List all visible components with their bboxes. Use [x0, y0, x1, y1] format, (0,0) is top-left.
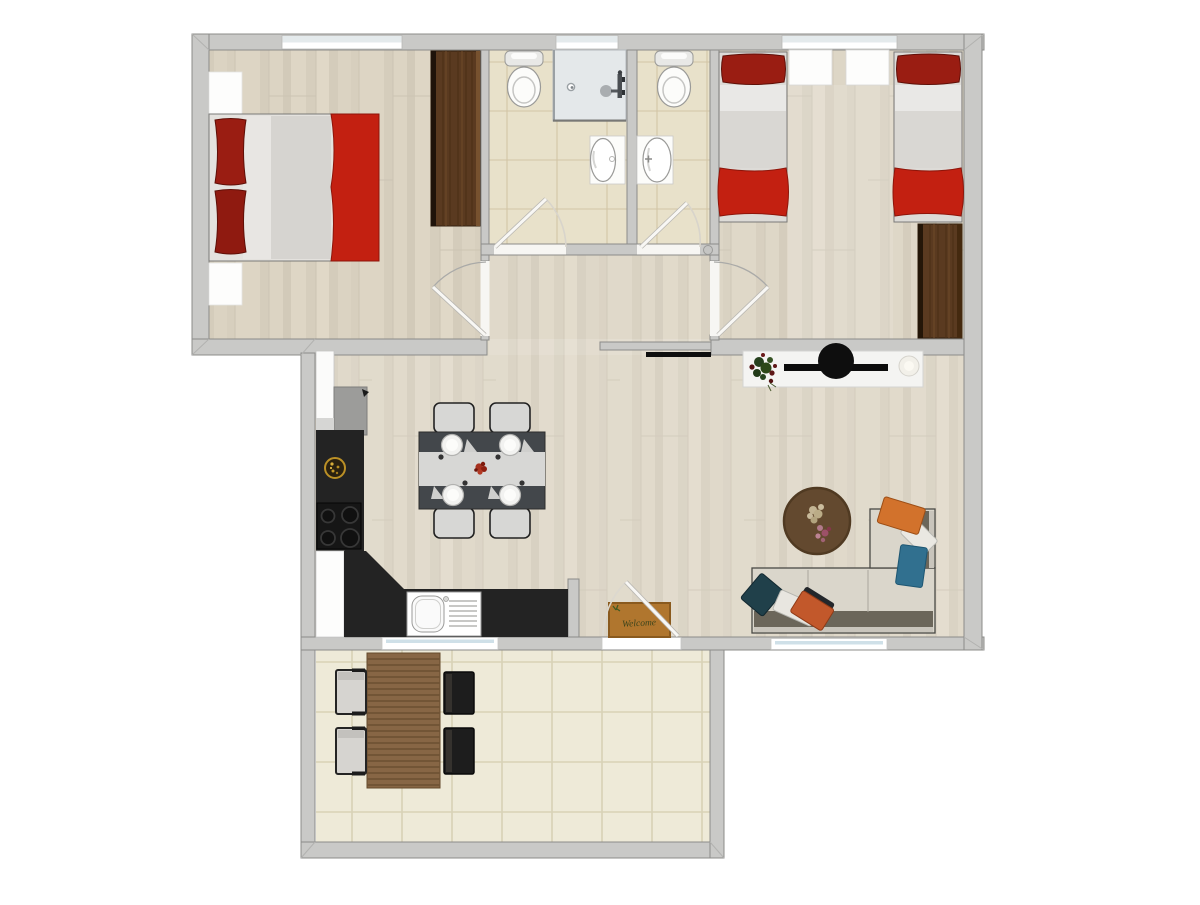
svg-text:Welcome: Welcome	[622, 618, 656, 630]
